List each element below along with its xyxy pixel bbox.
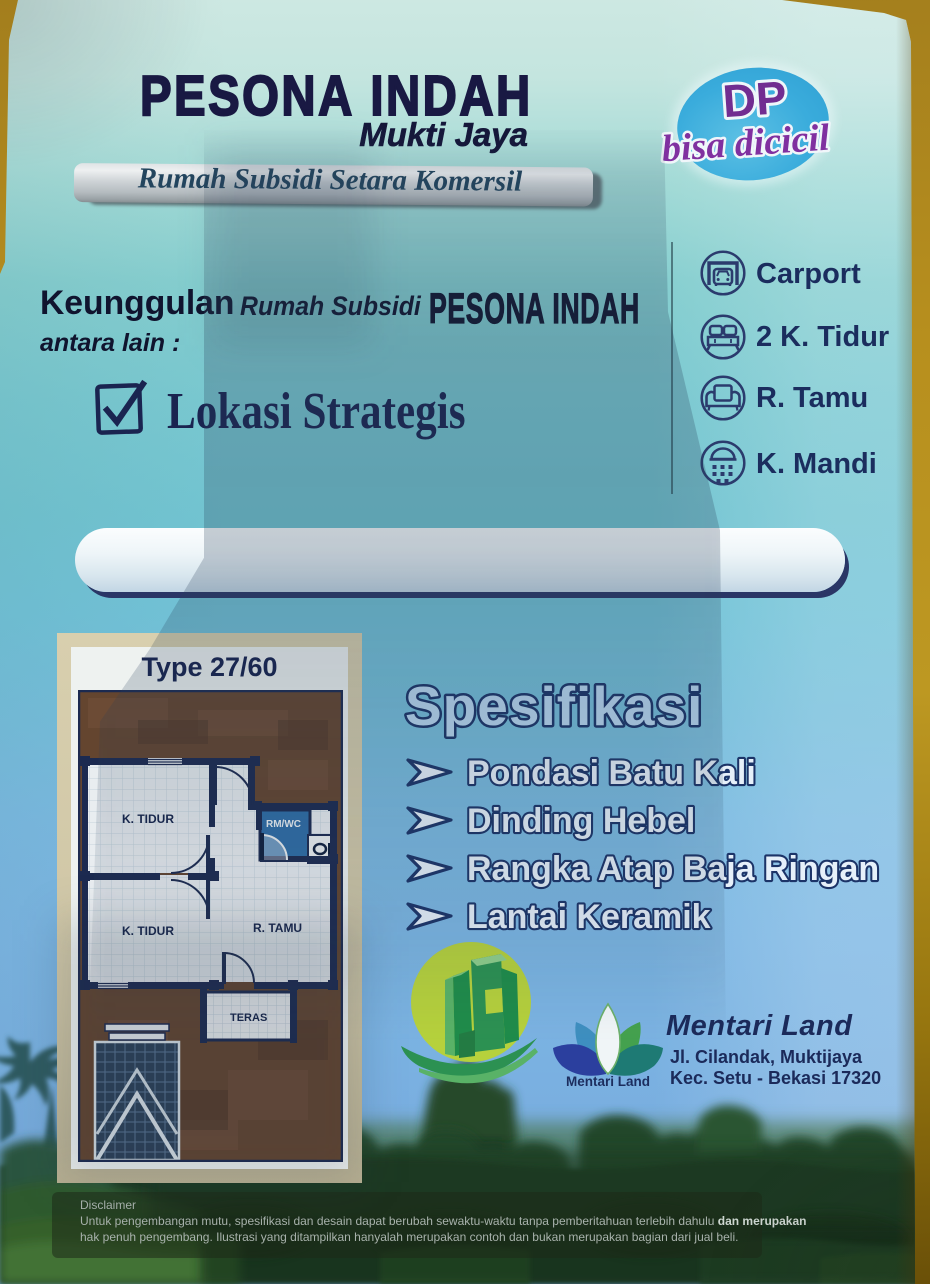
svg-text:bisa dicicil: bisa dicicil bbox=[660, 117, 831, 171]
svg-text:K. TIDUR: K. TIDUR bbox=[122, 924, 174, 938]
svg-text:Mentari Land: Mentari Land bbox=[566, 1074, 650, 1089]
svg-text:Lantai Keramik: Lantai Keramik bbox=[467, 898, 712, 936]
svg-text:R. TAMU: R. TAMU bbox=[253, 921, 302, 935]
svg-text:Rangka Atap Baja Ringan: Rangka Atap Baja Ringan bbox=[467, 850, 879, 888]
svg-text:RM/WC: RM/WC bbox=[266, 819, 301, 830]
svg-text:Dinding Hebel: Dinding Hebel bbox=[467, 802, 695, 840]
svg-text:K. TIDUR: K. TIDUR bbox=[122, 812, 174, 826]
svg-text:Pondasi Batu Kali: Pondasi Batu Kali bbox=[467, 754, 756, 792]
svg-text:TERAS: TERAS bbox=[230, 1012, 267, 1024]
svg-text:Spesifikasi: Spesifikasi bbox=[405, 675, 703, 737]
svg-text:DP: DP bbox=[721, 71, 788, 127]
